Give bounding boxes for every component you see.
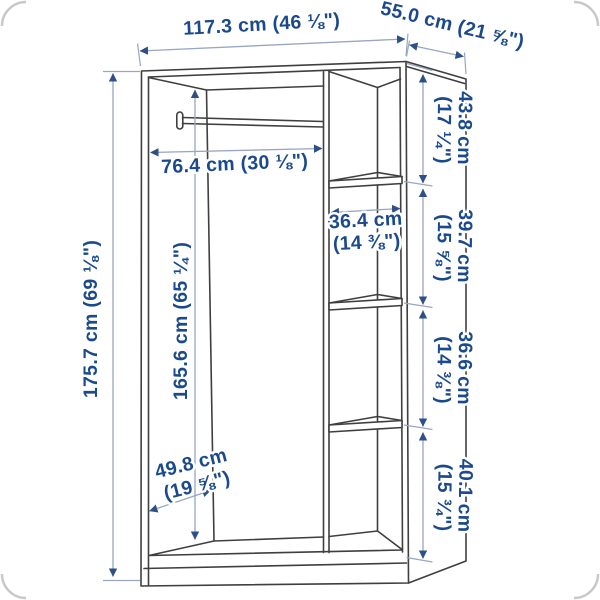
- rail-bracket: [177, 112, 183, 129]
- compartment-2-label-inch: (15 ⅝"): [432, 214, 455, 282]
- plinth-top-edge: [144, 563, 407, 569]
- side-panel-top-edge: [407, 67, 465, 84]
- dimension-lines: [103, 34, 466, 581]
- corner-mark: [2, 574, 26, 598]
- overall-depth-dimension-line: [410, 45, 464, 57]
- shelf-2: [329, 299, 402, 311]
- right-stile-inner-edge: [400, 68, 403, 553]
- corner-mark: [574, 2, 598, 26]
- compartment-3-label-cm: 36.6 cm: [453, 331, 476, 405]
- dimension-labels: 117.3 cm (46 ⅛") 55.0 cm (21 ⅝") 175.7 c…: [80, 0, 526, 533]
- corner-mark: [574, 574, 598, 598]
- shelf-1: [329, 177, 402, 189]
- interior-floor: [149, 531, 402, 556]
- shelf-3: [329, 421, 402, 433]
- overall-height-label: 175.7 cm (69 ⅛"): [80, 240, 102, 398]
- compartment-2-label-cm: 39.7 cm: [453, 209, 476, 283]
- rail-width-label: 76.4 cm (30 ⅛"): [161, 150, 309, 178]
- height-extension-lines: [103, 72, 140, 581]
- wardrobe-dimension-drawing: 117.3 cm (46 ⅛") 55.0 cm (21 ⅝") 175.7 c…: [0, 0, 600, 600]
- compartment-1-label-inch: (17 ¼"): [432, 96, 455, 164]
- interior-top-back-edge-right: [329, 72, 401, 88]
- shelf-width-label-inch: (14 ⅜"): [332, 230, 401, 256]
- compartment-4-label-inch: (15 ¾"): [432, 464, 455, 532]
- overall-width-label: 117.3 cm (46 ⅛"): [183, 9, 341, 40]
- product-dimension-diagram: 117.3 cm (46 ⅛") 55.0 cm (21 ⅝") 175.7 c…: [0, 0, 600, 600]
- overall-depth-label: 55.0 cm (21 ⅝"): [378, 0, 526, 53]
- corner-mark: [2, 2, 26, 26]
- interior-top-back-edge-left: [149, 78, 324, 91]
- compartment-4-label-cm: 40.1 cm: [453, 459, 476, 533]
- vertical-divider: [324, 72, 330, 553]
- overall-width-dimension-line: [140, 39, 405, 51]
- interior-height-label: 165.6 cm (65 ¼"): [170, 242, 192, 400]
- compartment-1-label-cm: 43.8 cm: [453, 91, 476, 165]
- compartment-3-label-inch: (14 ⅜"): [432, 336, 455, 404]
- clothes-rail: [183, 118, 324, 128]
